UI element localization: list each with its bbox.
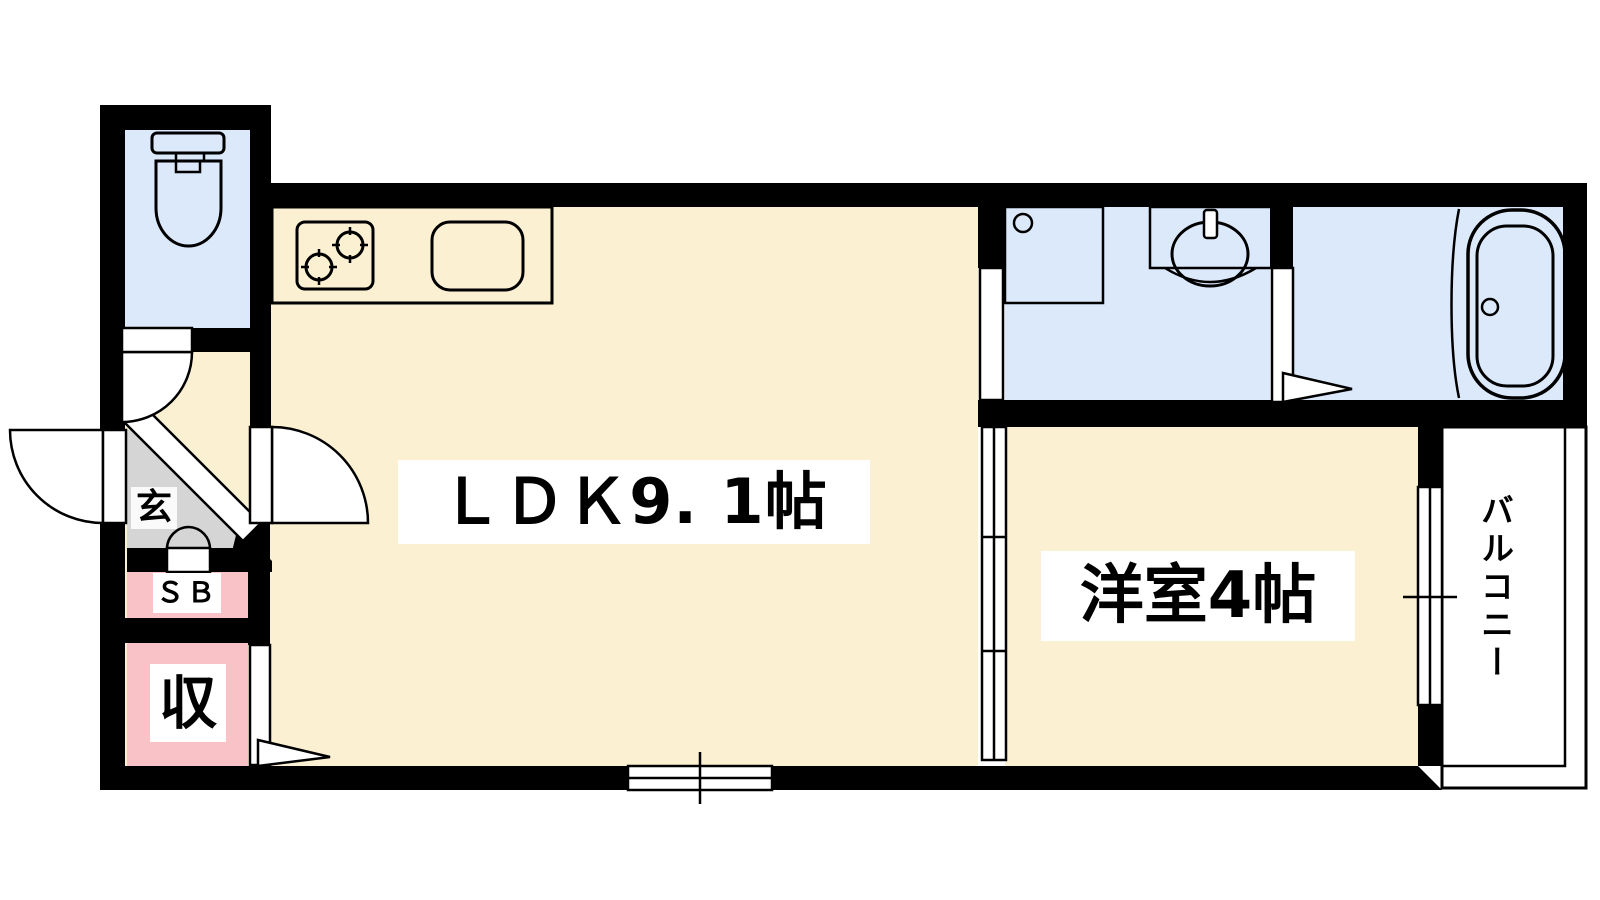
washroom-door-leaf xyxy=(980,268,1003,400)
floor-plan: ＬＤＫ9. 1帖 洋室4帖 バルコニー 玄 ＳＢ 収 xyxy=(0,0,1600,900)
sliding-door-ldk-western xyxy=(982,427,1006,760)
western-room-label: 洋室4帖 xyxy=(1041,551,1355,641)
wall-top xyxy=(250,183,1587,207)
entrance-label: 玄 xyxy=(131,487,177,529)
wall-balcony-window-bottom xyxy=(1418,705,1442,766)
wall-balcony-window-top xyxy=(1418,427,1442,487)
wall-bottom-right xyxy=(772,766,1418,790)
balcony-label: バルコニー xyxy=(1472,477,1518,699)
toilet-door-leaf xyxy=(122,328,192,352)
wall-toilet-bottom-stub xyxy=(192,328,250,352)
floor-plan-drawing xyxy=(0,0,1600,900)
wall-left-lower xyxy=(100,523,125,790)
ldk-room-label: ＬＤＫ9. 1帖 xyxy=(398,460,870,544)
entrance-door-leaf xyxy=(103,430,126,523)
storage-label: 収 xyxy=(150,664,226,742)
entrance-door-swing xyxy=(10,430,103,523)
bathroom-floor xyxy=(1293,207,1563,400)
wall-shoebox-storage-divider xyxy=(100,618,270,643)
ldk-door-leaf xyxy=(250,427,272,523)
wall-washroom-bath-divider xyxy=(1270,183,1293,268)
wall-washroom-left xyxy=(978,203,1005,268)
shoe-box-label: ＳＢ xyxy=(153,573,221,613)
wall-toilet-top xyxy=(100,105,271,130)
wall-mid-horizontal xyxy=(978,400,1587,427)
wall-toilet-right xyxy=(250,105,271,427)
wall-bottom-left xyxy=(100,766,628,790)
wall-bottom-miter xyxy=(1418,766,1442,790)
